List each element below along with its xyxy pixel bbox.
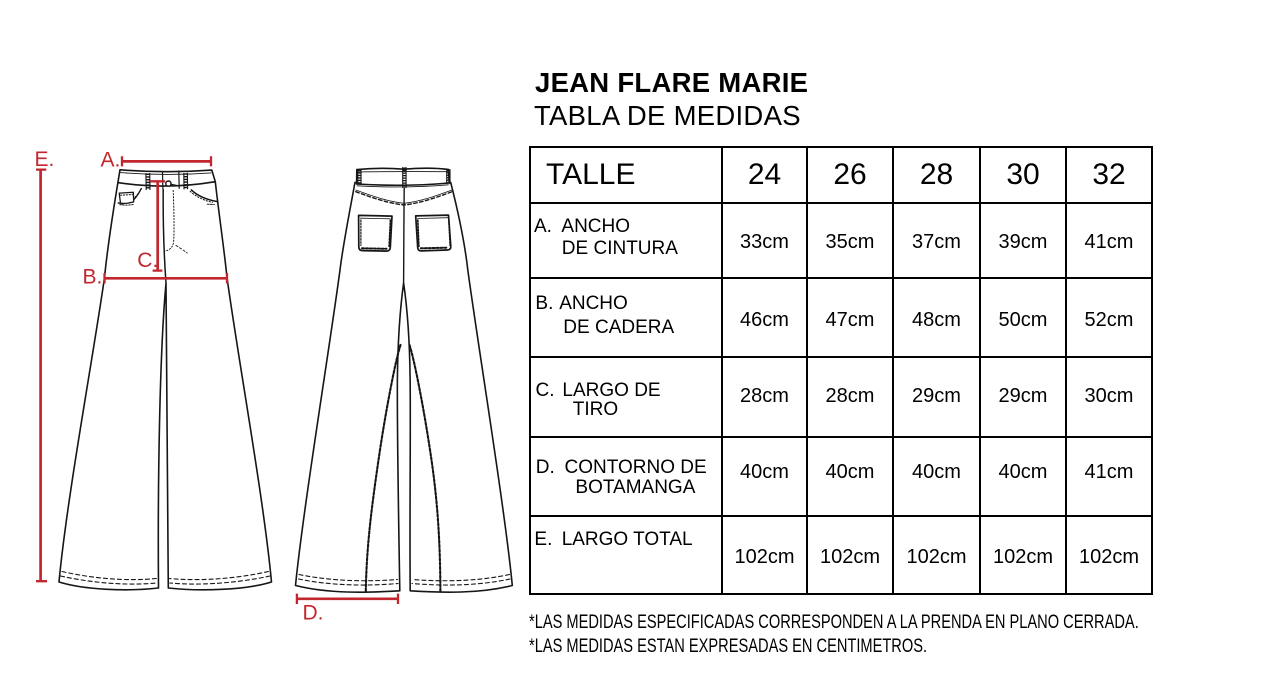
svg-text:C.: C. — [137, 249, 158, 272]
svg-text:D.: D. — [303, 602, 324, 625]
svg-text:A.: A. — [101, 149, 121, 172]
svg-text:B.: B. — [83, 266, 103, 289]
svg-text:E.: E. — [35, 148, 55, 171]
